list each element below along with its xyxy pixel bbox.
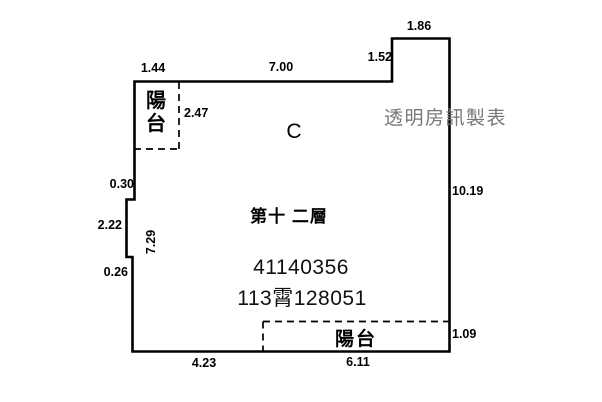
dimension-right-wall-height: 10.19: [452, 184, 483, 198]
dimension-notch-width: 1.86: [407, 19, 431, 33]
dimension-left-step-lower: 0.26: [104, 265, 128, 279]
dimension-left-step-upper: 0.30: [110, 177, 134, 191]
dimension-bottom-balcony-depth: 1.09: [452, 327, 476, 341]
top-balcony-label: 陽台: [145, 90, 167, 136]
dimension-left-wall-height: 7.29: [144, 230, 158, 254]
dimension-bottom-wall-width: 4.23: [192, 356, 216, 370]
watermark-text: 透明房訊製表: [384, 103, 507, 130]
bottom-balcony-label: 陽台: [335, 324, 377, 351]
floor-plan-canvas: 1.44 7.00 1.86 1.52 2.47 0.30 10.19 2.22…: [0, 0, 602, 402]
dimension-bottom-balcony-width: 6.11: [346, 355, 370, 369]
serial-number-line1: 41140356: [253, 256, 349, 280]
dimension-top-balcony-depth: 2.47: [184, 106, 208, 120]
floor-number-label: 第十 二層: [250, 202, 328, 227]
dimension-top-balcony-width: 1.44: [141, 61, 165, 75]
dimension-left-step-mid: 2.22: [98, 218, 122, 232]
unit-letter-label: C: [286, 120, 301, 144]
dimension-top-wall-width: 7.00: [269, 60, 293, 74]
serial-number-line2: 113霄128051: [237, 282, 367, 312]
floor-plan-drawing: [0, 0, 602, 402]
dimension-notch-height: 1.52: [368, 50, 392, 64]
